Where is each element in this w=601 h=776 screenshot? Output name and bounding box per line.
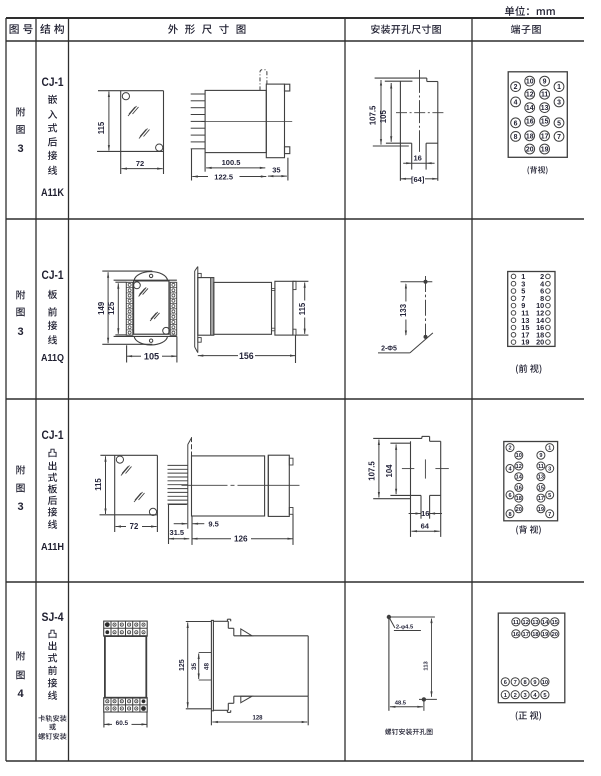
svg-text:156: 156 <box>239 351 254 361</box>
svg-text:20: 20 <box>516 507 522 513</box>
svg-text:60.5: 60.5 <box>116 720 129 727</box>
svg-text:113: 113 <box>423 660 429 670</box>
svg-text:105: 105 <box>379 110 388 124</box>
svg-text:9.5: 9.5 <box>208 519 218 528</box>
svg-text:2: 2 <box>508 446 511 452</box>
svg-text:10: 10 <box>516 453 522 459</box>
svg-text:6: 6 <box>504 680 507 686</box>
svg-text:20: 20 <box>552 632 558 638</box>
svg-text:8: 8 <box>514 134 518 141</box>
svg-text:7: 7 <box>514 680 517 686</box>
svg-text:12: 12 <box>516 464 522 470</box>
svg-text:3: 3 <box>17 143 23 155</box>
svg-text:3: 3 <box>548 467 551 473</box>
svg-text:15: 15 <box>552 620 558 626</box>
svg-text:A11Q: A11Q <box>41 352 64 364</box>
svg-text:CJ-1: CJ-1 <box>42 270 65 282</box>
svg-text:133: 133 <box>399 303 408 317</box>
svg-text:10: 10 <box>542 680 548 686</box>
svg-text:16: 16 <box>513 632 519 638</box>
svg-text:15: 15 <box>538 485 544 491</box>
svg-text:19: 19 <box>538 507 544 513</box>
svg-text:115: 115 <box>298 302 307 315</box>
svg-text:2: 2 <box>514 84 518 91</box>
svg-text:64: 64 <box>421 522 430 531</box>
svg-text:3: 3 <box>17 501 23 513</box>
svg-text:12: 12 <box>526 92 534 99</box>
svg-text:20: 20 <box>536 338 544 347</box>
svg-text:72: 72 <box>130 522 139 531</box>
svg-text:115: 115 <box>94 478 103 491</box>
svg-text:5: 5 <box>543 693 546 699</box>
svg-text:14: 14 <box>526 105 534 112</box>
svg-text:14: 14 <box>542 620 549 626</box>
svg-text:6: 6 <box>508 493 511 499</box>
svg-text:115: 115 <box>97 121 106 134</box>
svg-text:125: 125 <box>107 301 116 315</box>
svg-text:48: 48 <box>203 663 210 671</box>
svg-text:16: 16 <box>516 485 522 491</box>
svg-text:[64]: [64] <box>411 175 425 184</box>
svg-text:35: 35 <box>191 663 198 671</box>
svg-text:5: 5 <box>557 120 561 127</box>
svg-text:7: 7 <box>557 134 561 141</box>
svg-text:11: 11 <box>541 92 548 99</box>
svg-text:7: 7 <box>548 512 551 518</box>
svg-text:122.5: 122.5 <box>214 172 233 181</box>
svg-text:11: 11 <box>513 620 519 626</box>
svg-text:18: 18 <box>516 496 522 502</box>
svg-text:10: 10 <box>526 79 534 86</box>
svg-text:2-φ4.5: 2-φ4.5 <box>396 624 414 630</box>
svg-text:6: 6 <box>514 120 518 127</box>
svg-text:2: 2 <box>514 693 517 699</box>
svg-text:9: 9 <box>539 453 542 459</box>
svg-text:100.5: 100.5 <box>222 158 241 167</box>
svg-text:18: 18 <box>532 632 538 638</box>
svg-text:105: 105 <box>144 351 159 361</box>
svg-text:A11K: A11K <box>41 187 64 199</box>
svg-text:5: 5 <box>548 493 551 499</box>
svg-text:19: 19 <box>521 338 529 347</box>
svg-text:CJ-1: CJ-1 <box>42 430 65 442</box>
svg-text:CJ-1: CJ-1 <box>42 77 65 89</box>
svg-text:19: 19 <box>541 147 549 154</box>
svg-text:48.5: 48.5 <box>395 701 407 707</box>
svg-text:SJ-4: SJ-4 <box>42 612 65 624</box>
svg-text:13: 13 <box>541 105 549 112</box>
svg-text:72: 72 <box>136 159 144 168</box>
svg-text:9: 9 <box>533 680 536 686</box>
svg-text:1: 1 <box>504 693 507 699</box>
svg-text:3: 3 <box>17 326 23 338</box>
svg-text:12: 12 <box>523 620 529 626</box>
svg-text:17: 17 <box>538 496 544 502</box>
svg-text:19: 19 <box>542 632 548 638</box>
svg-text:16: 16 <box>526 119 534 126</box>
svg-text:104: 104 <box>385 464 394 478</box>
svg-text:14: 14 <box>516 475 523 481</box>
svg-text:1: 1 <box>557 84 561 91</box>
svg-text:20: 20 <box>526 147 534 154</box>
svg-text:4: 4 <box>514 99 518 106</box>
svg-text:18: 18 <box>526 133 534 140</box>
svg-text:13: 13 <box>538 475 544 481</box>
svg-text:8: 8 <box>524 680 527 686</box>
svg-text:15: 15 <box>541 119 549 126</box>
svg-text:16: 16 <box>421 509 429 518</box>
svg-text:35: 35 <box>272 166 280 175</box>
svg-text:128: 128 <box>252 716 263 722</box>
svg-text:17: 17 <box>541 133 549 140</box>
svg-text:A11H: A11H <box>41 541 64 553</box>
svg-text:11: 11 <box>538 464 544 470</box>
svg-text:3: 3 <box>524 693 527 699</box>
svg-text:31.5: 31.5 <box>169 528 184 537</box>
svg-text:2-Φ5: 2-Φ5 <box>381 346 397 353</box>
svg-text:9: 9 <box>543 79 547 86</box>
svg-text:13: 13 <box>532 620 538 626</box>
svg-text:107.5: 107.5 <box>368 105 377 125</box>
svg-text:126: 126 <box>234 535 248 544</box>
svg-text:17: 17 <box>523 632 529 638</box>
svg-text:8: 8 <box>508 512 511 518</box>
svg-text:149: 149 <box>97 301 106 315</box>
svg-text:4: 4 <box>17 688 24 700</box>
svg-text:16: 16 <box>414 154 422 163</box>
svg-text:125: 125 <box>179 659 186 671</box>
svg-text:1: 1 <box>548 446 551 452</box>
svg-text:107.5: 107.5 <box>368 461 377 481</box>
svg-text:3: 3 <box>557 99 561 106</box>
